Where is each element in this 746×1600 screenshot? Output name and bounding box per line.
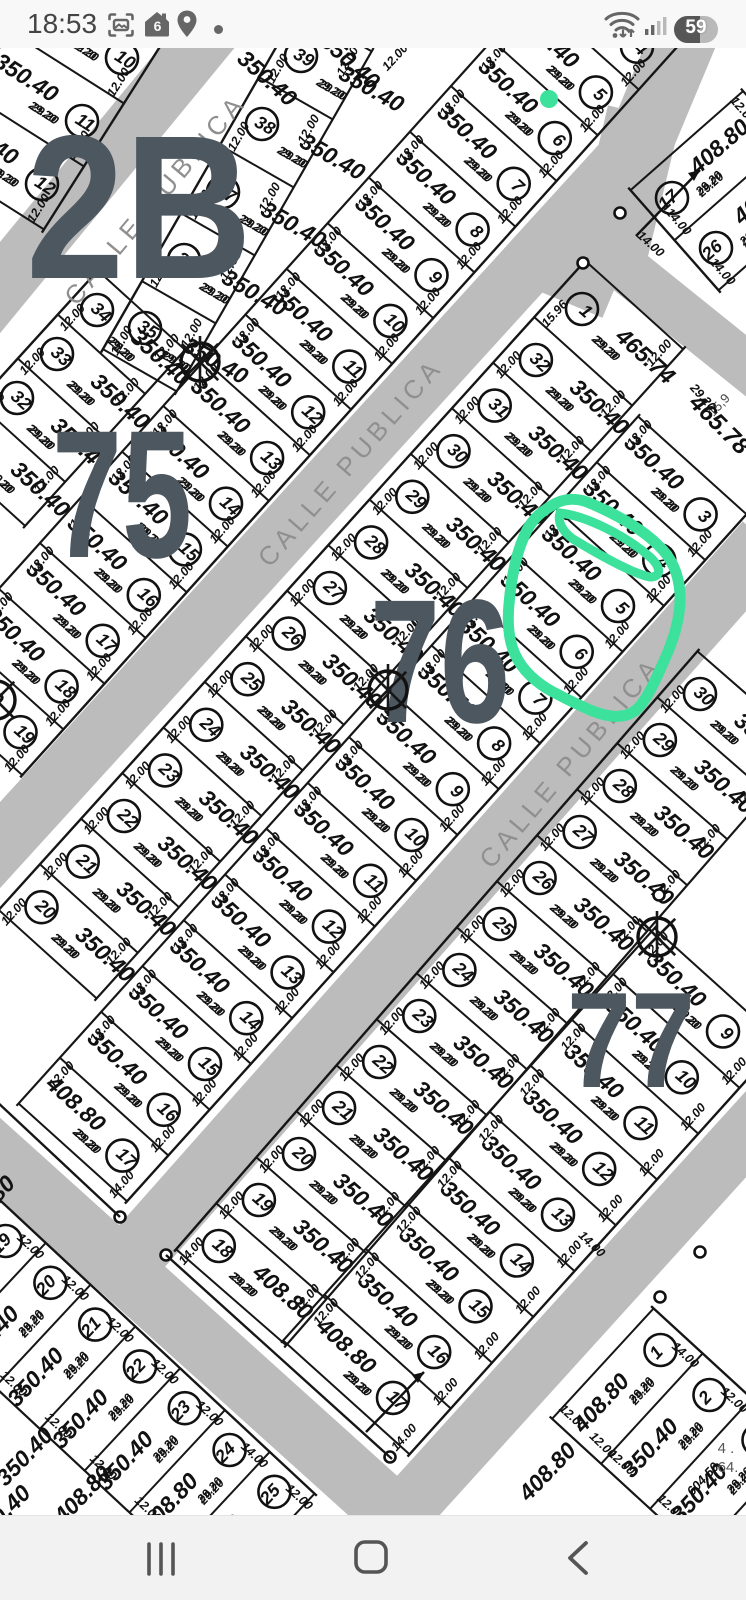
svg-text:75: 75 <box>52 392 192 596</box>
svg-text:76: 76 <box>370 564 510 760</box>
svg-text:2B: 2B <box>26 93 252 322</box>
svg-text:6: 6 <box>154 18 162 34</box>
svg-text:4 .: 4 . <box>718 1440 735 1457</box>
svg-text:64.: 64. <box>718 1459 739 1476</box>
svg-text:77: 77 <box>567 964 695 1116</box>
